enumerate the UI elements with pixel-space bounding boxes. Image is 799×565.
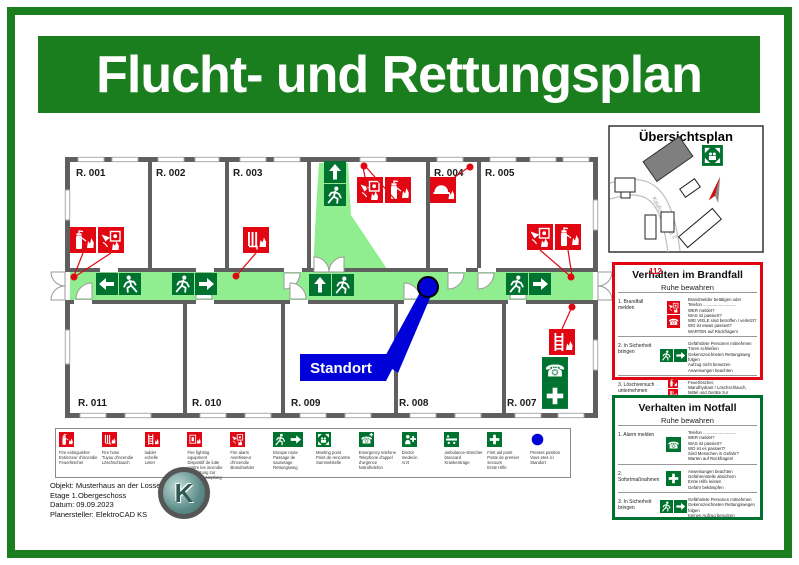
notfall-header: Verhalten im Notfall Ruhe bewahren (615, 398, 760, 425)
notfall-step-1: 1. Alarm melden Telefon ................… (618, 425, 757, 464)
legend-item: Emergency telefone Telephone d'appel d'u… (356, 429, 399, 477)
brandfall-step-2: 2. In Sicherheit bringen Gefährdete Pers… (618, 336, 757, 375)
title-banner: Flucht- und Rettungsplan (38, 36, 760, 113)
logo-letter: K (175, 478, 194, 509)
fire-extinguisher-icon (668, 378, 678, 388)
fire-alarm-icon (230, 432, 245, 447)
arrow-right-sign-icon (674, 500, 687, 513)
first-aid-cross-icon (666, 471, 681, 486)
notfall-step-3: 3. In Sicherheit bringen Gefährdete Pers… (618, 492, 757, 520)
legend-item: Meeting point Point de rencontre Sammels… (313, 429, 356, 477)
ambulance-stretcher-icon (444, 432, 459, 447)
phone-icon (667, 315, 680, 328)
meeting-point-icon (316, 432, 331, 447)
notfall-box: Verhalten im Notfall Ruhe bewahren 1. Al… (612, 395, 763, 520)
fire-fighting-equipment-icon (187, 432, 202, 447)
fire-hose-icon (102, 432, 117, 447)
doctor-icon (402, 432, 417, 447)
legend-item: Doctor medecin Arzt (399, 429, 442, 477)
first-aid-point-icon (487, 432, 502, 447)
brandfall-box: Verhalten im Brandfall Ruhe bewahren 1. … (612, 262, 763, 380)
present-position-icon (530, 432, 545, 447)
phone-icon (666, 437, 681, 452)
notfall-step-2: 2. Sofortmaßnahmen Anweisungen beachten … (618, 464, 757, 492)
page-title: Flucht- und Rettungsplan (96, 45, 702, 105)
legend-item: Escape route Passage de sauvetage Rettun… (270, 429, 313, 477)
company-logo: K (158, 467, 210, 519)
notfall-subtitle: Ruhe bewahren (615, 416, 760, 425)
plan-info: Objekt: Musterhaus an der Losse Etage 1.… (50, 481, 160, 519)
brandfall-title: Verhalten im Brandfall (615, 269, 760, 281)
arrow-right-sign-icon (674, 349, 687, 362)
escape-route-icon (273, 432, 303, 447)
emergency-number: 112 (649, 267, 662, 276)
running-man-icon (660, 500, 673, 513)
emergency-telephone-icon (359, 432, 374, 447)
legend-item: ambulance-stretcher brancard Krankentrag… (441, 429, 484, 477)
brandfall-header: Verhalten im Brandfall Ruhe bewahren (615, 265, 760, 292)
brandfall-step-1: 1. Brandfall melden Brandmelder betätige… (618, 292, 757, 336)
legend-item: Fire hose Tuyau d'incendie Löschschlauch (99, 429, 142, 477)
ladder-icon (145, 432, 160, 447)
fire-alarm-button-icon (667, 301, 680, 314)
fire-extinguisher-icon (59, 432, 74, 447)
running-man-icon (660, 349, 673, 362)
notfall-title: Verhalten im Notfall (615, 402, 760, 414)
brandfall-subtitle: Ruhe bewahren (615, 283, 760, 292)
legend-item: Present position Vous etes ici Standort (527, 429, 570, 477)
legend-item: First aid point Poste de premier secours… (484, 429, 527, 477)
legend-item: Fire extinguisher Extincteur d'incendie … (56, 429, 99, 477)
legend: Fire extinguisher Extincteur d'incendie … (55, 428, 571, 478)
legend-item: Fire alarm Avertisseur d'incendie Brandm… (227, 429, 270, 477)
